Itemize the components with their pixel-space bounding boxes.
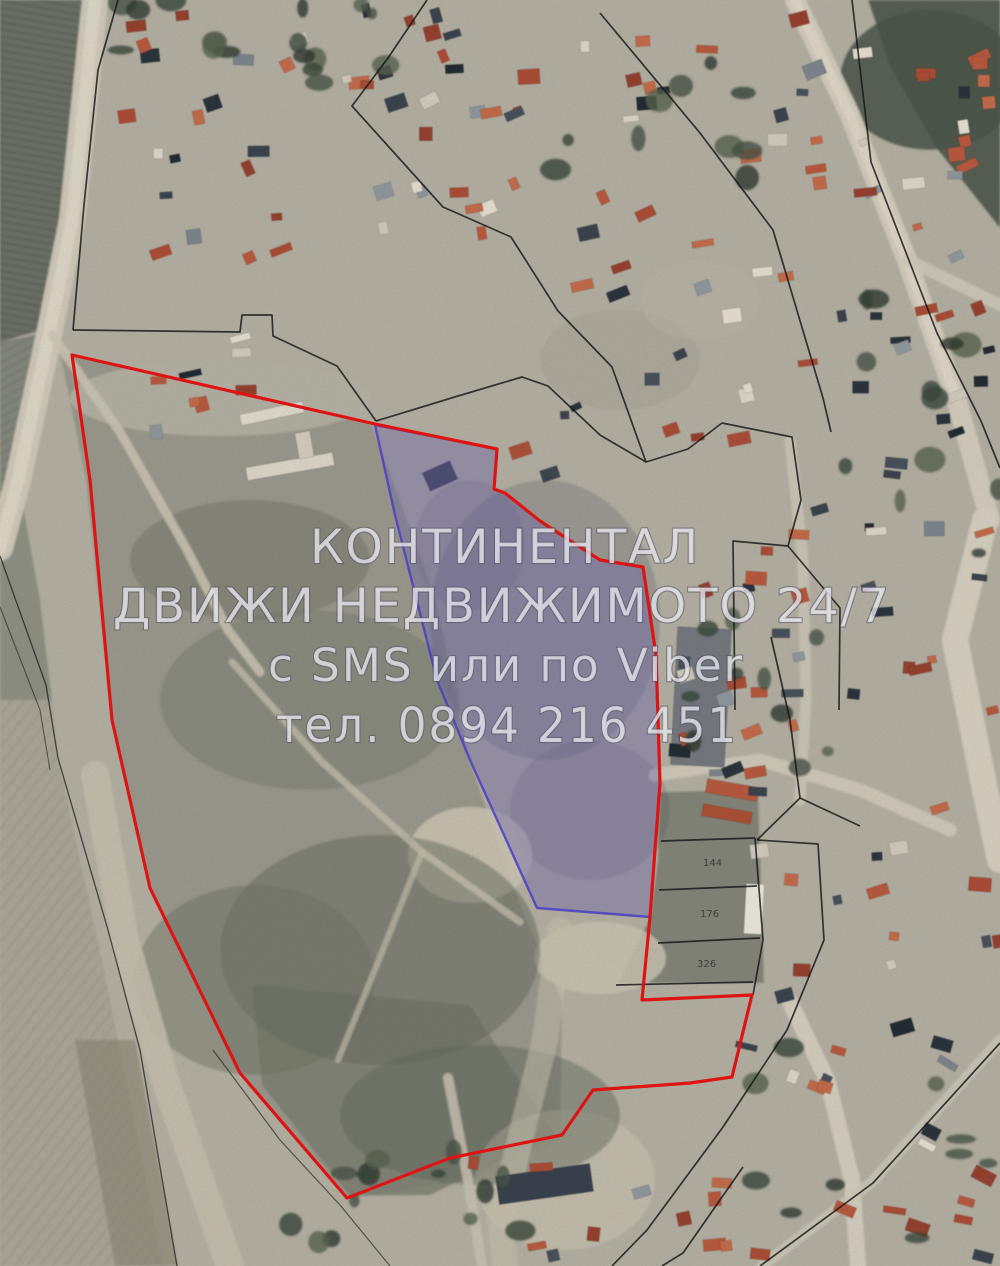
satellite-map: 144 176 326 КОНТИНЕНТАЛ ДВИЖИ НЕДВИЖИМОТ… [0, 0, 1000, 1266]
parcel-number: 176 [700, 909, 719, 920]
aerial-photo-canvas: 144 176 326 КОНТИНЕНТАЛ ДВИЖИ НЕДВИЖИМОТ… [0, 0, 1000, 1266]
watermark-brand-text: КОНТИНЕНТАЛ [310, 520, 700, 575]
parcel-number: 326 [697, 959, 716, 970]
watermark-phone-text: тел. 0894 216 451 [276, 698, 738, 754]
watermark-slogan-text: ДВИЖИ НЕДВИЖИМОТО 24/7 [113, 579, 891, 634]
parcel-number: 144 [703, 858, 722, 869]
watermark-contact-method-text: с SMS или по Viber [268, 639, 744, 692]
